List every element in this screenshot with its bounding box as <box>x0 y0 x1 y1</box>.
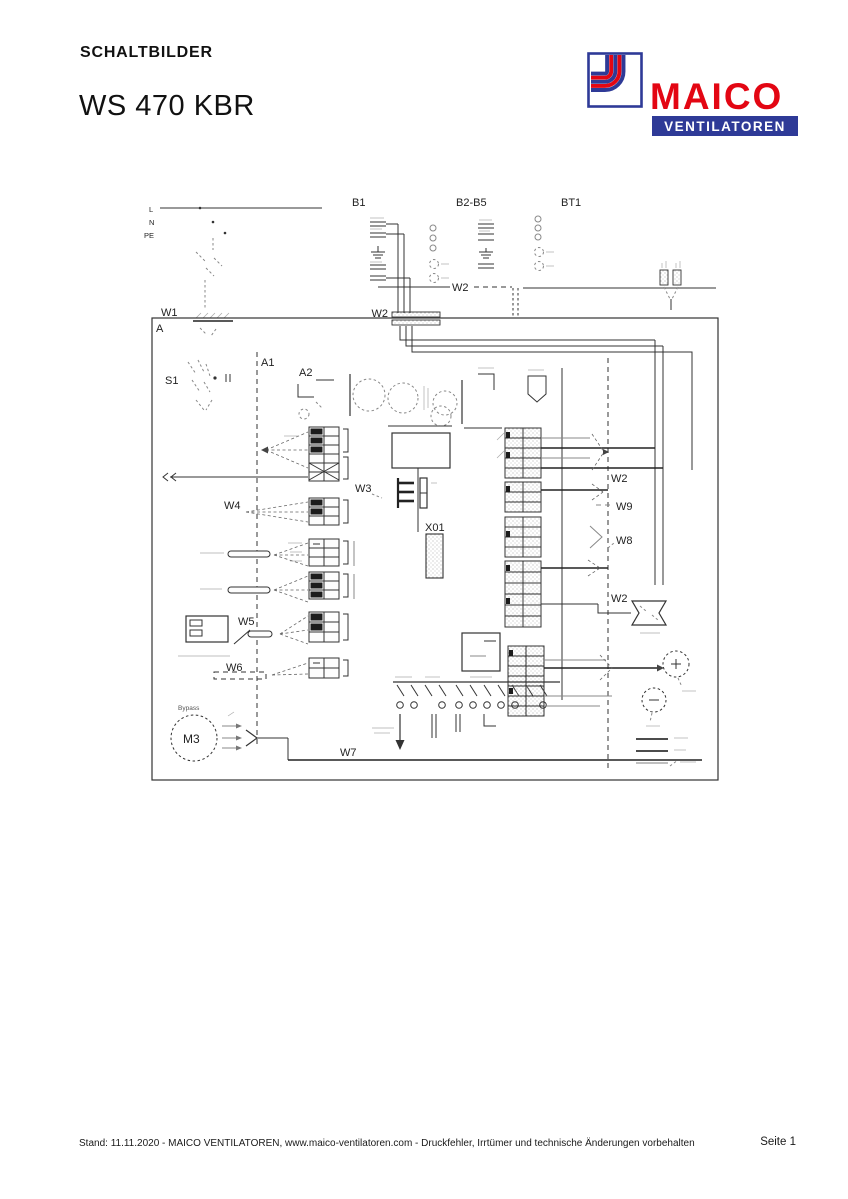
subtitle-text: VENTILATOREN <box>664 119 786 134</box>
label-w2-bushing: W2 <box>372 308 389 320</box>
label-w2-right-low: W2 <box>611 593 628 605</box>
sensor-block-b2-b5: B2-B5 <box>456 197 494 268</box>
connector-w3: W3 <box>355 478 437 508</box>
label-b1: B1 <box>352 197 365 209</box>
wiring-diagram: L N PE W1 B1 <box>140 190 732 794</box>
connector-x01: X01 <box>425 522 445 578</box>
label-s1: S1 <box>165 375 178 387</box>
label-a: A <box>156 323 164 335</box>
label-w2-right-top: W2 <box>611 473 628 485</box>
footer-info: Stand: 11.11.2020 - MAICO VENTILATOREN, … <box>79 1138 695 1149</box>
terminal-strips-right <box>497 428 544 716</box>
label-w9: W9 <box>616 501 633 513</box>
sensor-block-bt1: BT1 <box>535 197 582 271</box>
label-w3: W3 <box>355 483 372 495</box>
label-pe: PE <box>144 231 154 240</box>
mains-input: L N PE <box>144 205 322 310</box>
footer-page-number: Seite 1 <box>760 1136 796 1148</box>
motor-m3: Bypass M3 <box>171 705 288 761</box>
module-a2: A2 <box>298 367 334 419</box>
label-x01: X01 <box>425 522 445 534</box>
label-w2-run: W2 <box>452 282 469 294</box>
sensor-block-b1: B1 <box>352 197 449 313</box>
label-a2: A2 <box>299 367 312 379</box>
label-w8: W8 <box>616 535 633 547</box>
sensors-right <box>544 651 696 726</box>
label-a1: A1 <box>261 357 274 369</box>
brand-wordmark: MAICO <box>650 76 783 117</box>
legend-right <box>636 738 696 766</box>
label-b2-b5: B2-B5 <box>456 197 487 209</box>
label-bt1: BT1 <box>561 197 581 209</box>
document-page: SCHALTBILDER WS 470 KBR MAICO VENTILATOR… <box>0 0 848 1199</box>
label-n: N <box>149 218 154 227</box>
label-m3: M3 <box>183 732 200 746</box>
page-title: WS 470 KBR <box>79 90 255 123</box>
cables-left: W4 W5 W6 <box>163 432 308 679</box>
switch-s1: S1 <box>165 360 230 410</box>
label-l: L <box>149 205 153 214</box>
label-w7: W7 <box>340 747 357 759</box>
label-m3-caption: Bypass <box>178 705 200 712</box>
bushing-w1: W1 <box>161 307 233 336</box>
duct-bend-icon <box>589 54 642 107</box>
cable-w7: W7 <box>288 747 702 760</box>
cables-right: W2 W9 W8 W2 <box>541 434 666 633</box>
section-title: SCHALTBILDER <box>80 44 213 62</box>
label-w4: W4 <box>224 500 241 512</box>
bushing-top-right <box>660 261 681 310</box>
label-w1: W1 <box>161 307 178 319</box>
label-w5: W5 <box>238 616 255 628</box>
maico-logo: MAICO VENTILATOREN <box>586 48 802 140</box>
